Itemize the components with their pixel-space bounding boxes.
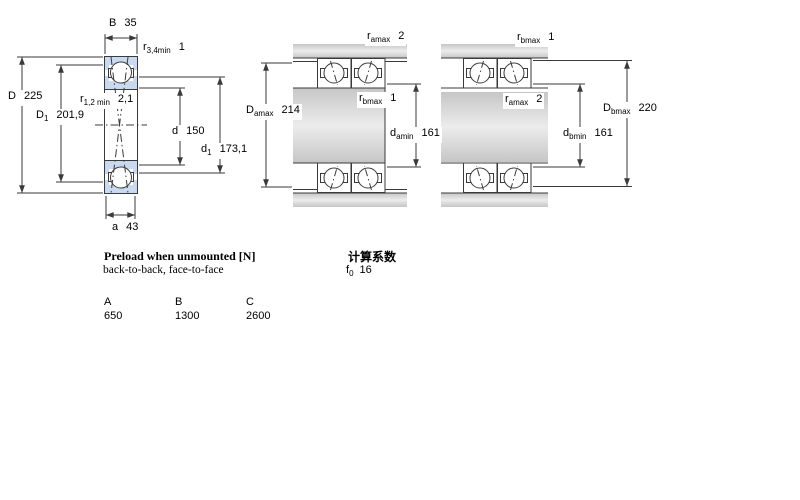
dim-label-r12min: r1,2 min2,1	[78, 93, 135, 109]
dim-label-db-min: dbmin161	[561, 127, 615, 143]
preload-value-A: 650	[104, 310, 122, 322]
preload-title: Preload when unmounted [N]	[104, 249, 255, 264]
calculation-factor-f0: f016	[346, 264, 372, 280]
middle-paired-mounting-drawing	[261, 44, 421, 207]
dim-label-D: D225	[6, 90, 44, 106]
dim-label-rb-max-right: rbmax1	[515, 31, 556, 47]
preload-value-C: 2600	[246, 310, 270, 322]
preload-value-B: 1300	[175, 310, 199, 322]
dim-label-ra-max-middle: ramax2	[365, 30, 406, 46]
preload-column-header-A: A	[104, 296, 111, 308]
calculation-factors-title: 计算系数	[348, 248, 396, 265]
right-paired-mounting-drawing	[441, 44, 632, 207]
dim-label-d1: d1173,1	[199, 143, 249, 159]
dim-label-da-min: damin161	[388, 127, 442, 143]
dim-label-B: B35	[107, 17, 139, 33]
dim-label-D1: D1201,9	[34, 109, 86, 125]
bearing-drawing-page: B35 r3,4min1 D225 D1201,9 r1,2 min2,1 d1…	[0, 0, 800, 500]
dim-label-Db-max: Dbmax220	[601, 102, 659, 118]
dim-label-a: a43	[110, 221, 140, 237]
dim-label-rb-max-middle: rbmax1	[357, 92, 398, 108]
dim-label-d: d150	[170, 125, 206, 141]
dim-label-r34min: r3,4min1	[141, 41, 187, 57]
preload-column-header-B: B	[175, 296, 182, 308]
dim-label-ra-max-right: ramax2	[503, 93, 544, 109]
preload-subtitle: back-to-back, face-to-face	[103, 264, 224, 276]
dim-label-Da-max: Damax214	[244, 104, 302, 120]
preload-column-header-C: C	[246, 296, 254, 308]
